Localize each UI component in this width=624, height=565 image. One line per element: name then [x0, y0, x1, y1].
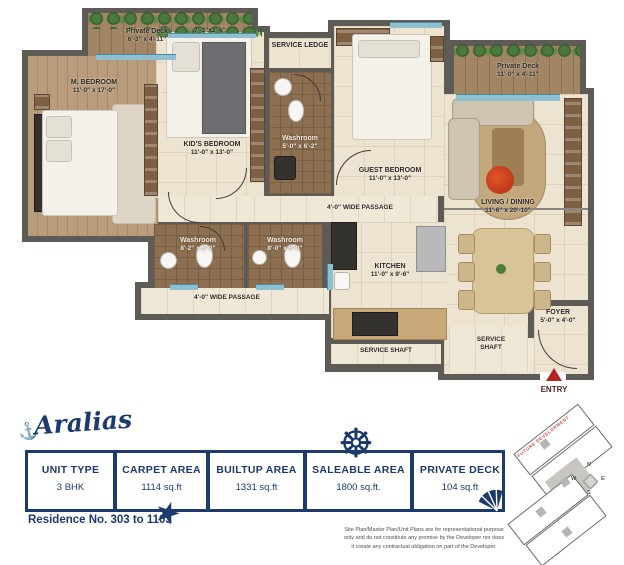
chair-icon — [534, 234, 551, 254]
label-balcony: 7'-3"x2'-6" — [172, 27, 248, 35]
label-service-ledge: SERVICE LEDGE — [269, 41, 331, 50]
brand-logo: Aralias — [33, 405, 133, 441]
key-plan: FUTURE DEVELOPMENT N E S W — [505, 398, 624, 565]
label-service-shaft-2: SERVICE SHAFT — [466, 336, 516, 353]
label-kids-bedroom: KID'S BEDROOM 11'-0" x 13'-0" — [162, 140, 262, 158]
room-dims: 11'-0" x 17'-0" — [38, 87, 150, 95]
blanket-icon — [202, 42, 246, 134]
pillow-icon — [172, 42, 200, 72]
sink-icon — [274, 78, 292, 96]
room-name: FOYER — [546, 309, 570, 316]
room-dims: 11'-0" x 13'-0" — [340, 175, 440, 183]
spec-value: 1331 sq.ft — [210, 482, 303, 493]
spec-col-unit-type: UNIT TYPE 3 BHK — [28, 453, 113, 509]
room-name: 4'-0" WIDE PASSAGE — [194, 294, 260, 301]
window-sill — [170, 284, 198, 290]
room-name: M. BEDROOM — [71, 79, 117, 86]
chair-icon — [534, 290, 551, 310]
label-guest-bedroom: GUEST BEDROOM 11'-0" x 13'-0" — [340, 166, 440, 184]
entry-arrow-icon — [546, 368, 562, 381]
room-name: SERVICE SHAFT — [477, 336, 505, 351]
room-dims: 5'-0" x 6'-2" — [269, 143, 331, 151]
spec-table: UNIT TYPE 3 BHK CARPET AREA 1114 sq.ft B… — [25, 450, 505, 512]
toilet-icon — [288, 100, 304, 122]
cooktop-icon — [352, 312, 398, 336]
spec-header: PRIVATE DECK — [414, 464, 506, 476]
window-sill — [390, 22, 442, 28]
room-dims: 8'-2" x 5'-0" — [156, 245, 240, 253]
wardrobe-icon — [250, 68, 265, 182]
label-washroom-left: Washroom 8'-2" x 5'-0" — [156, 236, 240, 254]
room-name: Washroom — [267, 237, 303, 244]
room-name: Private Deck — [497, 63, 539, 70]
label-living-dining: LIVING / DINING 11'-6" x 20'-10" — [452, 198, 564, 216]
tv-console-icon — [564, 98, 582, 226]
spec-header: BUILTUP AREA — [210, 464, 303, 476]
pillow-icon — [46, 140, 72, 162]
disclaimer-text: Site Plan/Master Plan/Unit Plans are for… — [342, 526, 506, 551]
compass-e: E — [601, 476, 605, 482]
room-name: Private Deck — [126, 28, 168, 35]
pillow-icon — [46, 116, 72, 138]
room-dims: 11'-6" x 20'-10" — [452, 207, 564, 215]
room-name: Washroom — [282, 135, 318, 142]
spec-col-builtup-area: BUILTUP AREA 1331 sq.ft — [210, 453, 303, 509]
wardrobe-icon — [144, 84, 158, 196]
compass-s: S — [587, 490, 591, 496]
accent-chair-icon — [486, 166, 514, 194]
room-name: KID'S BEDROOM — [184, 141, 241, 148]
chair-icon — [458, 290, 475, 310]
spec-value: 1114 sq.ft — [117, 482, 206, 493]
sofa-icon — [448, 118, 480, 200]
window-sill — [327, 264, 333, 290]
label-washroom-right: Washroom 8'-0" x 5'-0" — [246, 236, 324, 254]
page: Private Deck 6'-3" x 4'-11" 7'-3"x2'-6" … — [0, 0, 624, 565]
label-entry: ENTRY — [528, 385, 580, 395]
chair-icon — [458, 234, 475, 254]
compass-w: W — [571, 476, 576, 482]
room-dims: 11'-0" x 13'-0" — [162, 149, 262, 157]
room-dims: 5'-0" x 4'-0" — [526, 317, 590, 325]
room-dims: 8'-0" x 5'-0" — [246, 245, 324, 253]
room-dims: 7'-3"x2'-6" — [172, 27, 248, 35]
room-name: SERVICE LEDGE — [272, 42, 329, 49]
label-m-bedroom: M. BEDROOM 11'-0" x 17'-0" — [38, 78, 150, 96]
washing-machine-icon — [274, 156, 296, 180]
side-table-icon — [34, 94, 50, 110]
side-table-icon — [430, 36, 444, 62]
label-passage-upper: 4'-0" WIDE PASSAGE — [290, 204, 430, 212]
room-dims: 11'-0" x 9'-6" — [352, 271, 428, 279]
room-dims: 6'-3" x 4'-11" — [92, 36, 202, 44]
planter-icon — [454, 43, 580, 59]
room-dims: 11'-0" x 4'-11" — [462, 71, 574, 79]
sink-icon — [160, 252, 177, 269]
spec-header: CARPET AREA — [117, 464, 206, 476]
compass-n: N — [587, 462, 591, 468]
room-name: LIVING / DINING — [481, 199, 535, 206]
chair-icon — [534, 262, 551, 282]
room-name: ENTRY — [541, 385, 568, 394]
label-washroom-mid: Washroom 5'-0" x 6'-2" — [269, 134, 331, 152]
sink-icon — [334, 272, 350, 290]
spec-header: UNIT TYPE — [28, 464, 113, 476]
room-name: KITCHEN — [374, 263, 405, 270]
spec-value: 1800 sq.ft. — [307, 482, 410, 493]
centerpiece-icon — [496, 264, 506, 274]
label-private-deck-right: Private Deck 11'-0" x 4'-11" — [462, 62, 574, 80]
window-sill — [96, 54, 176, 60]
label-service-shaft-1: SERVICE SHAFT — [336, 347, 436, 355]
room-name: GUEST BEDROOM — [359, 167, 422, 174]
spec-value: 3 BHK — [28, 482, 113, 493]
label-passage-lower: 4'-0" WIDE PASSAGE — [152, 294, 302, 302]
room-name: Washroom — [180, 237, 216, 244]
label-kitchen: KITCHEN 11'-0" x 9'-6" — [352, 262, 428, 280]
room-name: SERVICE SHAFT — [360, 347, 412, 354]
room-name: 4'-0" WIDE PASSAGE — [327, 204, 393, 211]
label-foyer: FOYER 5'-0" x 4'-0" — [526, 308, 590, 326]
pillow-icon — [358, 40, 420, 58]
ship-wheel-icon: ☸ — [338, 424, 374, 464]
window-sill — [456, 94, 560, 101]
chair-icon — [458, 262, 475, 282]
window-sill — [256, 284, 284, 290]
